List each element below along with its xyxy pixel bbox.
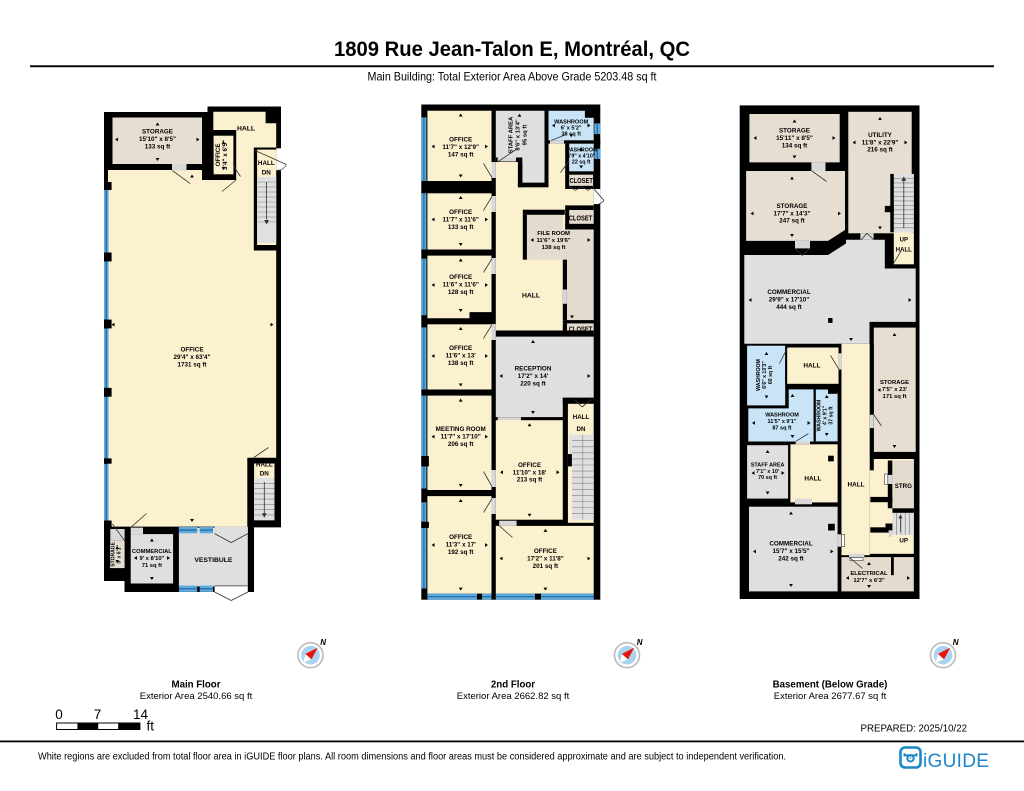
- svg-text:N: N: [953, 638, 959, 647]
- svg-text:ELECTRICAL12'7" x 6'3": ELECTRICAL12'7" x 6'3": [850, 571, 888, 584]
- svg-text:Main Building: Total Exterior: Main Building: Total Exterior Area Above…: [368, 70, 658, 84]
- svg-text:DN: DN: [577, 426, 586, 433]
- svg-text:Exterior Area 2677.67 sq ft: Exterior Area 2677.67 sq ft: [774, 691, 887, 702]
- svg-text:OFFICE11'6" x 13'138 sq ft: OFFICE11'6" x 13'138 sq ft: [446, 345, 477, 367]
- svg-text:White regions are excluded fro: White regions are excluded from total fl…: [38, 752, 786, 763]
- svg-text:ft: ft: [147, 719, 155, 734]
- svg-text:N: N: [637, 638, 643, 647]
- svg-text:7: 7: [94, 707, 102, 722]
- svg-text:Main Floor: Main Floor: [172, 680, 221, 691]
- svg-text:OFFICE3'4" x 6'5": OFFICE3'4" x 6'5": [215, 140, 229, 170]
- svg-text:CLOSET: CLOSET: [569, 214, 593, 223]
- svg-text:STRG: STRG: [895, 483, 912, 490]
- svg-text:Basement (Below Grade): Basement (Below Grade): [773, 680, 888, 691]
- svg-text:HALL: HALL: [237, 126, 255, 133]
- svg-text:UP: UP: [899, 538, 908, 545]
- svg-text:CLOSET: CLOSET: [569, 325, 593, 334]
- svg-text:2nd Floor: 2nd Floor: [491, 680, 535, 691]
- svg-text:HALL: HALL: [847, 482, 864, 489]
- svg-text:HALL: HALL: [803, 363, 820, 370]
- svg-text:STORAGE7'5" x 23'171 sq ft: STORAGE7'5" x 23'171 sq ft: [880, 380, 909, 400]
- svg-text:N: N: [320, 638, 326, 647]
- svg-text:VESTIBULE: VESTIBULE: [194, 557, 233, 564]
- svg-text:iGUIDE: iGUIDE: [923, 751, 989, 772]
- svg-text:1809 Rue Jean-Talon E, Montréa: 1809 Rue Jean-Talon E, Montréal, QC: [334, 38, 690, 61]
- svg-text:CLOSET: CLOSET: [569, 176, 593, 185]
- svg-text:Exterior Area 2540.66 sq ft: Exterior Area 2540.66 sq ft: [140, 691, 253, 702]
- svg-text:Exterior Area 2662.82 sq ft: Exterior Area 2662.82 sq ft: [457, 691, 570, 702]
- svg-text:HALL: HALL: [573, 414, 590, 421]
- svg-text:STORAGE3' x 6'1": STORAGE3' x 6'1": [110, 541, 122, 566]
- svg-text:PREPARED: 2025/10/22: PREPARED: 2025/10/22: [861, 724, 967, 735]
- svg-text:OFFICE11'3" x 17'192 sq ft: OFFICE11'3" x 17'192 sq ft: [446, 534, 477, 556]
- svg-text:HALL: HALL: [522, 293, 540, 300]
- svg-text:HALL: HALL: [804, 476, 821, 483]
- svg-text:0: 0: [55, 707, 63, 722]
